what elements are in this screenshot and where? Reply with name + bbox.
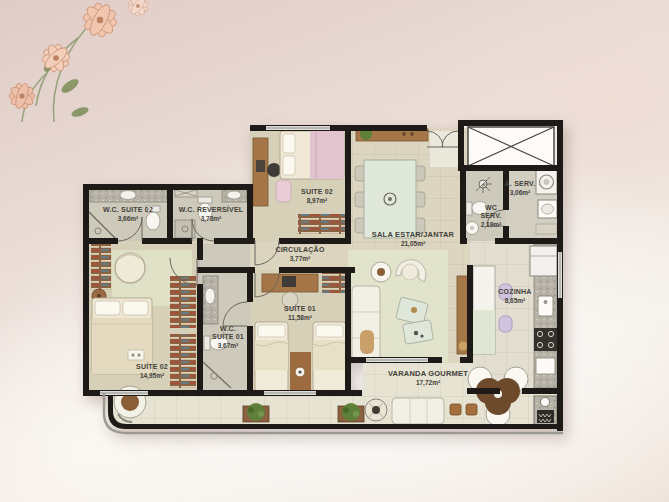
stove-icon [534,328,557,351]
single-bed-icon [313,322,346,392]
washer-icon [536,170,557,194]
kitchen-sink-icon [538,296,553,316]
dining-table-icon [355,160,425,238]
toilet-icon [146,206,160,230]
planter-icon [243,403,269,422]
elevator-hall [468,127,554,166]
wardrobe-icon [91,244,111,290]
single-bed-icon [255,322,288,392]
toilet-icon [198,197,212,221]
oven-icon [536,358,555,374]
side-table-icon [371,262,391,282]
chair-icon [499,284,512,300]
master-suite-furniture [91,244,196,388]
sink-icon [120,191,136,200]
desk-chair [267,163,281,177]
desk-chair [282,292,298,308]
double-bed-icon [92,298,152,374]
toilet-icon [466,202,488,216]
toilet-icon [204,336,228,350]
chair-icon [499,316,512,332]
grill-counter [534,396,557,426]
stool-icon [450,404,461,415]
single-bed-icon [280,131,344,179]
bench-icon [392,398,444,424]
rattan-chair-icon [365,399,387,421]
sink-icon [205,288,215,304]
shelf [536,224,557,234]
wardrobe-icon [170,334,196,388]
sofa-icon [352,286,380,362]
wardrobe-icon [170,276,196,328]
planter-icon [338,403,364,422]
armchair-icon [115,253,145,283]
sink-icon [541,398,550,407]
wardrobe-icon [322,273,348,293]
bed-bench [276,180,291,202]
fridge-icon [530,246,557,276]
sink-icon [227,191,241,199]
floorplan [0,0,669,502]
screenshot: W.C. SUITE 02 3,66m² W.C. REVERSÍVEL 3,7… [0,0,669,502]
area-servico-fixtures [536,170,557,234]
stool-icon [466,404,477,415]
wardrobe-icon [298,214,345,234]
